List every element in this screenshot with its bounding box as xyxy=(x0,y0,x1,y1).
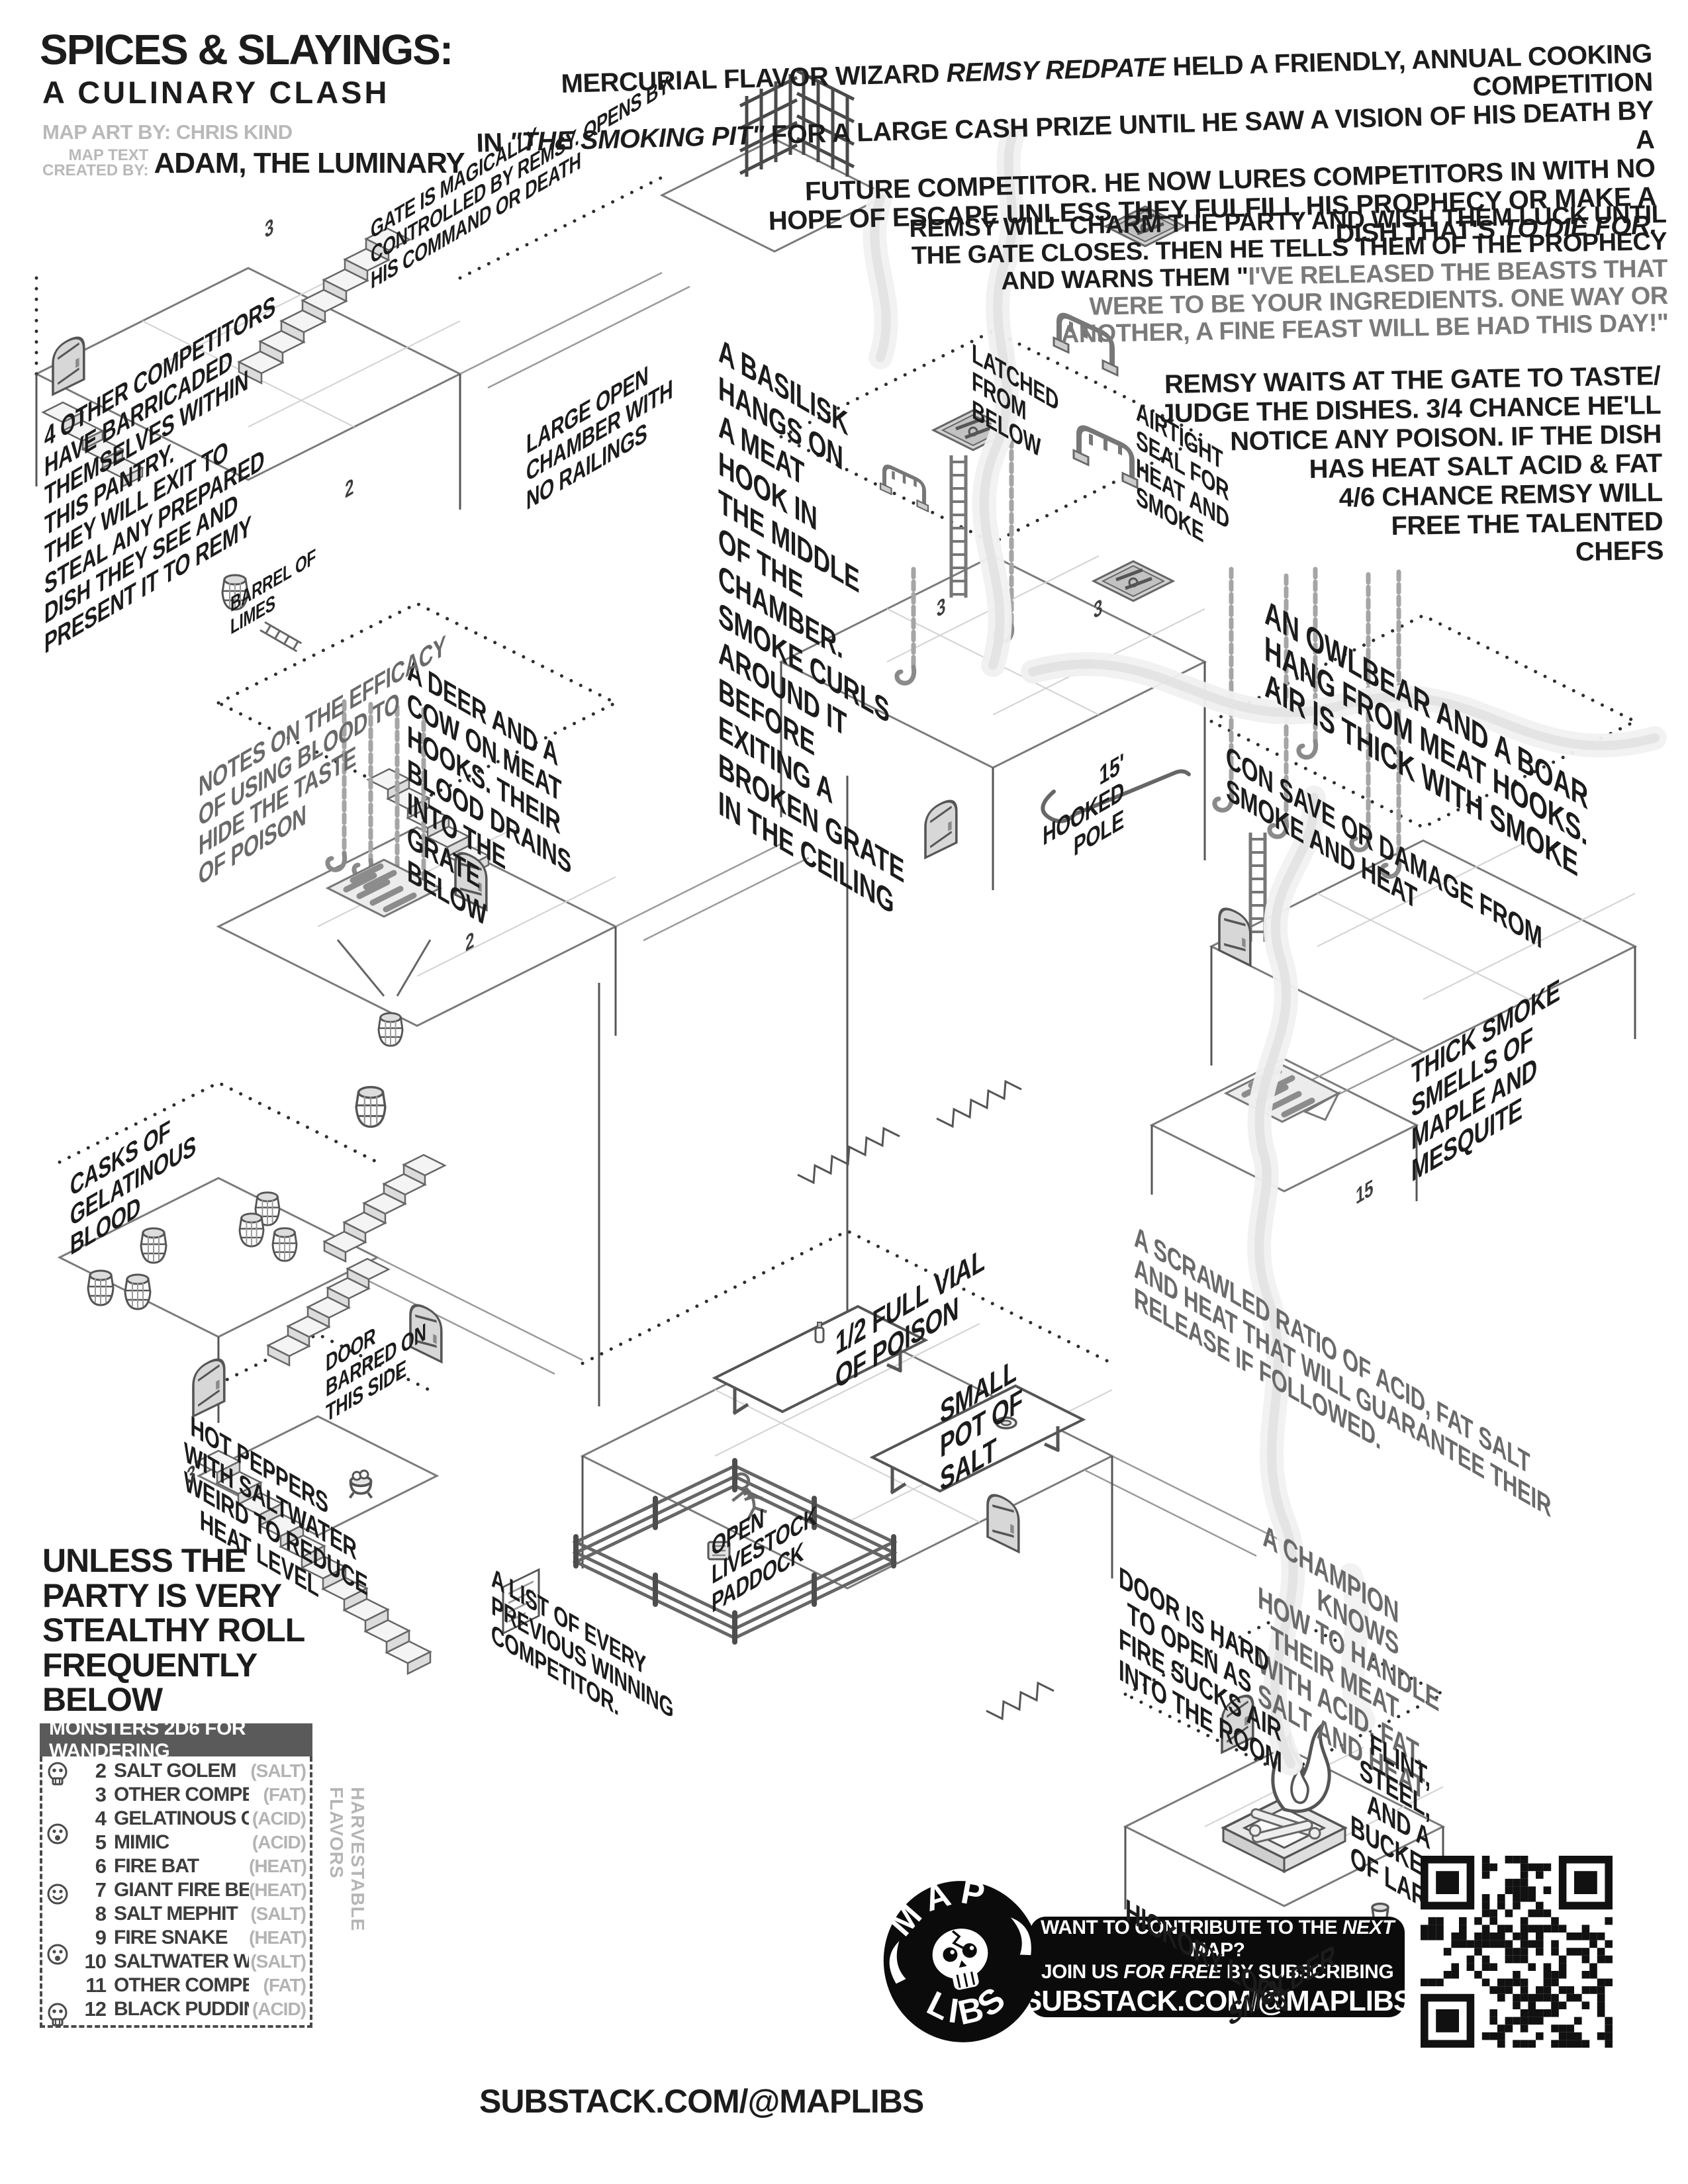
map-text-credit: MAP TEXT CREATED BY: ADAM, THE LUMINARY xyxy=(42,147,465,180)
dimension-label: 3 xyxy=(187,1459,195,1490)
monsters-table-header: MONSTERS 2D6 FOR WANDERING xyxy=(40,1723,312,1756)
monster-name: SALTWATER WEIRD xyxy=(106,1950,249,1973)
roll-value: 9 xyxy=(77,1926,106,1950)
map-text-by-name: ADAM, THE LUMINARY xyxy=(154,147,464,180)
table-row: 3OTHER COMPETITORS(FAT) xyxy=(77,1783,306,1807)
map-art-by-label: MAP ART BY: xyxy=(42,120,171,144)
roll-value: 12 xyxy=(77,1997,106,2021)
monster-name: FIRE BAT xyxy=(106,1855,249,1878)
monster-name: OTHER COMPETITORS xyxy=(106,1784,249,1806)
table-row: 12BLACK PUDDING(ACID) xyxy=(77,1997,306,2021)
smiley-face-icon xyxy=(45,1882,70,1907)
table-row: 5MIMIC(ACID) xyxy=(77,1831,306,1854)
table-row: 2SALT GOLEM(SALT) xyxy=(77,1759,306,1783)
map-text-by-label: MAP TEXT CREATED BY: xyxy=(42,148,148,179)
monsters-table: 2SALT GOLEM(SALT) 3OTHER COMPETITORS(FAT… xyxy=(40,1756,312,2028)
flavor-tag: (SALT) xyxy=(249,1760,306,1782)
monster-name: GIANT FIRE BEETLES xyxy=(106,1879,249,1901)
monster-name: OTHER COMPETITORS xyxy=(106,1974,249,1997)
harvestable-flavors-label: HARVESTABLE FLAVORS xyxy=(326,1787,368,1999)
roll-value: 4 xyxy=(77,1807,106,1831)
roll-value: 8 xyxy=(77,1902,106,1926)
flavor-tag: (FAT) xyxy=(249,1975,306,1996)
dimension-label: 3 xyxy=(937,592,945,623)
roll-value: 11 xyxy=(77,1974,106,1997)
roll-value: 7 xyxy=(77,1878,106,1902)
flavor-tag: (ACID) xyxy=(249,1832,306,1853)
flavor-tag: (FAT) xyxy=(249,1784,306,1805)
table-row: 7GIANT FIRE BEETLES(HEAT) xyxy=(77,1878,306,1902)
monster-name: SALT MEPHIT xyxy=(106,1903,249,1925)
map-art-credit: MAP ART BY: CHRIS KIND xyxy=(42,120,293,144)
flavor-tag: (HEAT) xyxy=(249,1880,306,1901)
intro-text: FOR A LARGE CASH PRIZE UNTIL HE SAW A VI… xyxy=(764,96,1655,154)
flavor-tag: (ACID) xyxy=(249,1999,306,2020)
table-row: 8SALT MEPHIT(SALT) xyxy=(77,1902,306,1926)
qr-code xyxy=(1421,1856,1613,2048)
table-row: 10SALTWATER WEIRD(SALT) xyxy=(77,1950,306,1974)
page-title-line1: SPICES & SLAYINGS: xyxy=(40,25,452,74)
monster-name: GELATINOUS CUBE xyxy=(106,1807,249,1830)
table-row: 4GELATINOUS CUBE(ACID) xyxy=(77,1807,306,1831)
substack-url: SUBSTACK.COM/@MAPLIBS xyxy=(479,2082,923,2120)
monster-name: MIMIC xyxy=(106,1831,249,1854)
poster-map: SPICES & SLAYINGS: A CULINARY CLASH MAP … xyxy=(0,0,1688,2184)
dimension-label: 3 xyxy=(265,213,273,244)
promo-substack-url: SUBSTACK.COM/@MAPLIBS xyxy=(1023,1985,1412,2017)
map-art-by-name: CHRIS KIND xyxy=(176,120,293,144)
stealth-warning-note: UNLESS THE PARTY IS VERY STEALTHY ROLL F… xyxy=(42,1543,305,1717)
monster-name: BLACK PUDDING xyxy=(106,1998,249,2021)
skull-icon xyxy=(45,1761,70,1786)
flavor-tag: (SALT) xyxy=(249,1903,306,1925)
table-row: 6FIRE BAT(HEAT) xyxy=(77,1854,306,1878)
roll-value: 10 xyxy=(77,1950,106,1974)
charm-paragraph: REMSY WILL CHARM THE PARTY AND WISH THEM… xyxy=(863,201,1669,352)
flavor-tag: (ACID) xyxy=(249,1808,306,1829)
maplibs-logo: MAP LIBS xyxy=(879,1877,1045,2046)
roll-value: 3 xyxy=(77,1783,106,1807)
pepper-pot-prop xyxy=(350,1471,372,1498)
remsy-name: REMSY REDPATE xyxy=(946,53,1166,88)
dimension-label: 2 xyxy=(345,473,353,504)
flavor-tag: (HEAT) xyxy=(249,1856,306,1877)
roll-value: 5 xyxy=(77,1831,106,1854)
surprised-face-icon xyxy=(45,1821,70,1846)
flavor-tag: (HEAT) xyxy=(249,1927,306,1948)
table-row: 9FIRE SNAKE(HEAT) xyxy=(77,1926,306,1950)
roll-value: 6 xyxy=(77,1854,106,1878)
skull-icon xyxy=(45,2002,70,2027)
monster-name: FIRE SNAKE xyxy=(106,1927,249,1949)
dimension-label: 3 xyxy=(1094,594,1102,625)
monster-name: SALT GOLEM xyxy=(106,1760,249,1782)
roll-value: 2 xyxy=(77,1759,106,1783)
flavor-tag: (SALT) xyxy=(249,1951,306,1972)
table-row: 11OTHER COMPETITORS(FAT) xyxy=(77,1974,306,1997)
page-title-line2: A CULINARY CLASH xyxy=(42,74,389,111)
dimension-label: 2 xyxy=(465,927,474,958)
surprised-face-icon xyxy=(45,1942,70,1967)
